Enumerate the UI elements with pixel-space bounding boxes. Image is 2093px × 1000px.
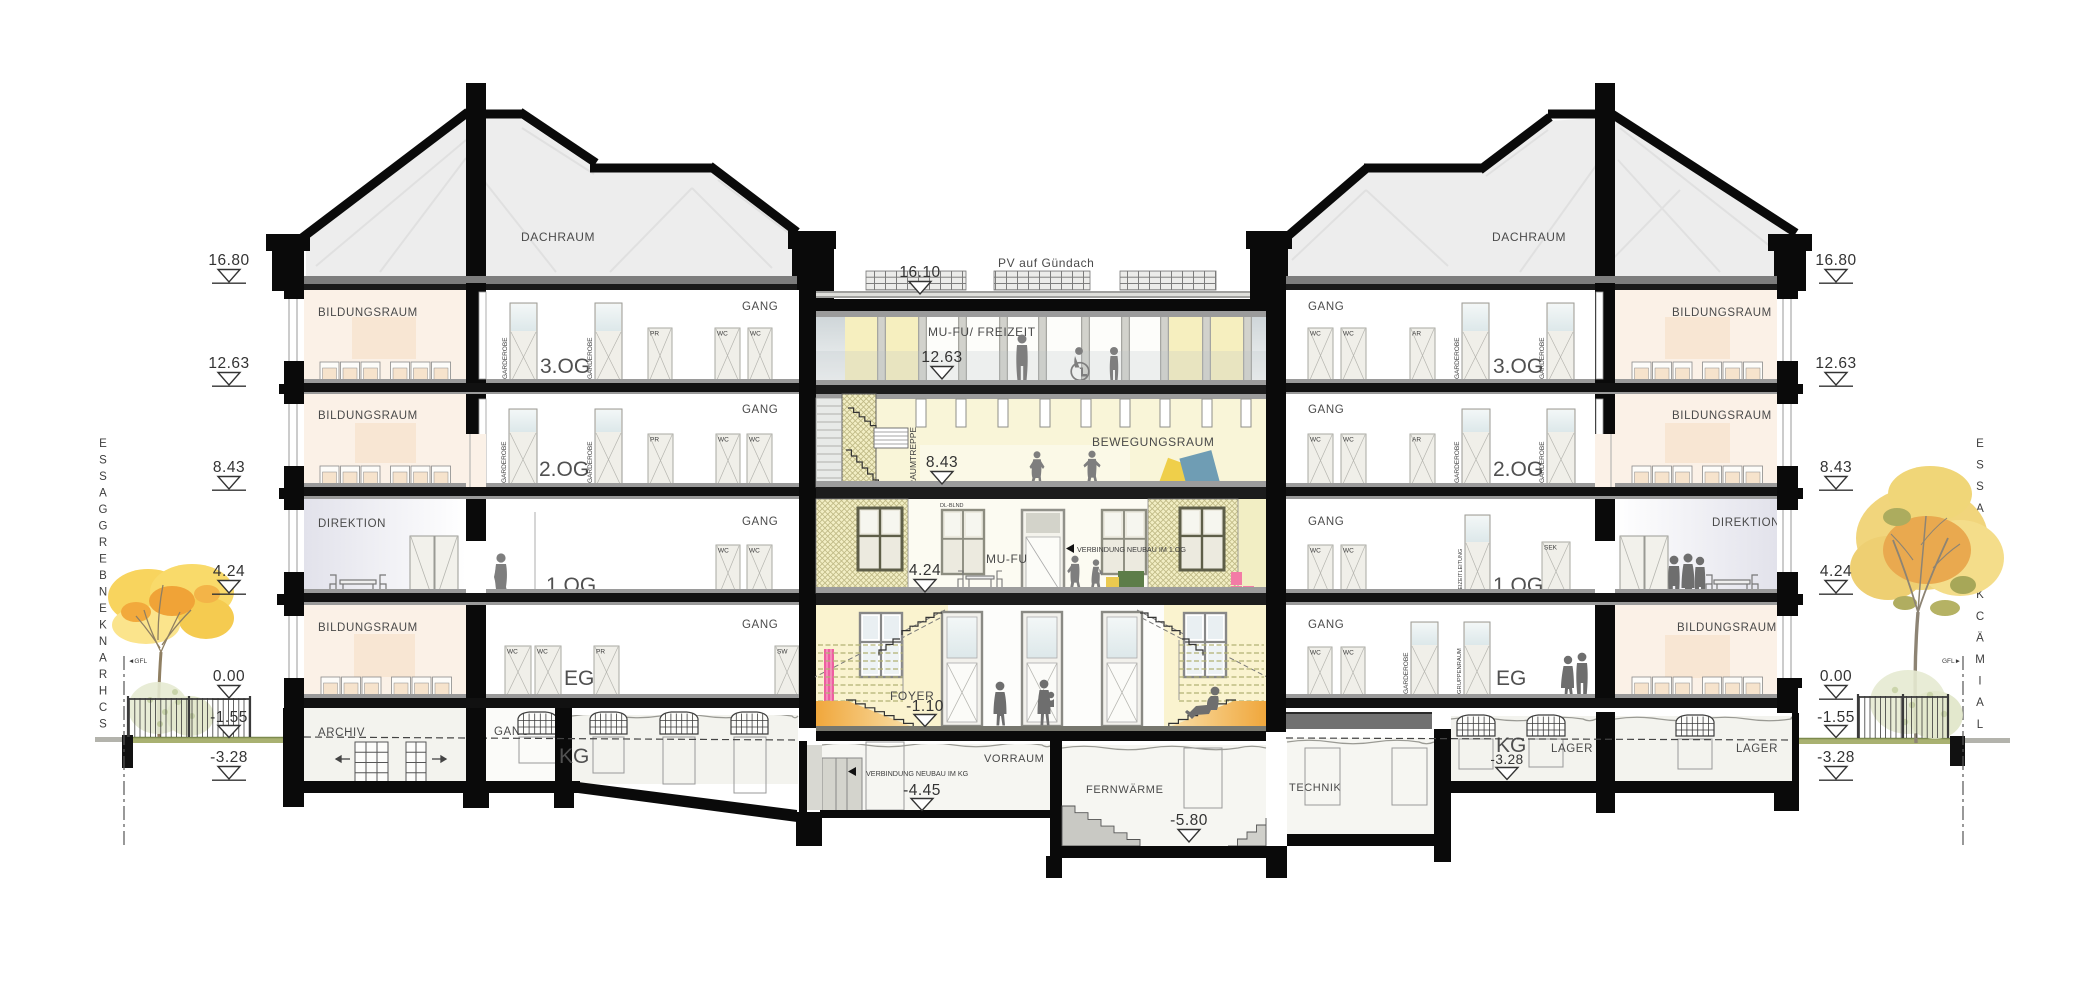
svg-text:WC: WC	[507, 649, 518, 656]
svg-text:GANG: GANG	[742, 619, 778, 631]
svg-text:WC: WC	[749, 437, 760, 444]
svg-text:3.OG: 3.OG	[1493, 355, 1543, 378]
svg-text:AR: AR	[1412, 331, 1421, 338]
svg-text:SEK: SEK	[1544, 545, 1558, 552]
svg-text:EG: EG	[564, 667, 594, 690]
svg-text:E: E	[99, 438, 107, 450]
svg-text:4.24: 4.24	[1820, 563, 1852, 580]
svg-text:VORRAUM: VORRAUM	[984, 753, 1044, 765]
svg-text:WC: WC	[750, 331, 761, 338]
svg-text:SW: SW	[777, 649, 788, 656]
svg-text:WC: WC	[1310, 437, 1321, 444]
svg-text:S: S	[1976, 460, 1984, 472]
svg-text:GRUPPENRAUM: GRUPPENRAUM	[1457, 648, 1463, 694]
svg-text:WC: WC	[1343, 437, 1354, 444]
svg-text:N: N	[99, 587, 107, 599]
svg-text:MU-FU: MU-FU	[986, 552, 1028, 566]
svg-text:A: A	[1976, 697, 1984, 709]
svg-text:S: S	[99, 471, 107, 483]
svg-text:3.OG: 3.OG	[540, 355, 590, 378]
svg-text:H: H	[99, 686, 107, 698]
svg-text:-3.28: -3.28	[210, 749, 248, 766]
svg-text:16.80: 16.80	[208, 252, 249, 269]
svg-text:C: C	[99, 702, 107, 714]
svg-text:GARDEROBE: GARDEROBE	[1454, 441, 1461, 483]
svg-text:WC: WC	[1310, 548, 1321, 555]
svg-text:M: M	[1975, 654, 1985, 666]
svg-text:C: C	[1976, 611, 1984, 623]
svg-text:E: E	[99, 603, 107, 615]
svg-text:BILDUNGSRAUM: BILDUNGSRAUM	[1672, 307, 1772, 319]
svg-text:WC: WC	[1343, 331, 1354, 338]
svg-text:DACHRAUM: DACHRAUM	[1492, 230, 1566, 244]
svg-text:GFL►: GFL►	[1942, 658, 1961, 665]
svg-text:GARDEROBE: GARDEROBE	[1454, 337, 1461, 379]
svg-text:PV auf Gündach: PV auf Gündach	[998, 256, 1094, 270]
svg-text:S: S	[99, 719, 107, 731]
svg-text:WC: WC	[537, 649, 548, 656]
svg-text:DACHRAUM: DACHRAUM	[521, 230, 595, 244]
svg-text:-4.45: -4.45	[903, 782, 941, 799]
svg-text:GARDEROBE: GARDEROBE	[502, 337, 509, 379]
svg-text:BILDUNGSRAUM: BILDUNGSRAUM	[318, 410, 418, 422]
svg-text:AR: AR	[1412, 437, 1421, 444]
svg-text:KG: KG	[559, 745, 589, 768]
svg-text:4.24: 4.24	[213, 563, 245, 580]
svg-text:A: A	[99, 653, 107, 665]
svg-text:-1.10: -1.10	[906, 698, 944, 715]
svg-text:4.24: 4.24	[909, 562, 941, 579]
svg-text:TECHNIK: TECHNIK	[1289, 782, 1342, 794]
svg-text:WC: WC	[1310, 331, 1321, 338]
svg-text:BILDUNGSRAUM: BILDUNGSRAUM	[1672, 410, 1772, 422]
svg-text:WC: WC	[1343, 548, 1354, 555]
svg-text:DIREKTION: DIREKTION	[1712, 517, 1780, 529]
svg-text:B: B	[99, 570, 107, 582]
svg-text:GARDEROBE: GARDEROBE	[501, 441, 508, 483]
svg-text:8.43: 8.43	[926, 454, 958, 471]
svg-text:LAGER: LAGER	[1736, 743, 1778, 755]
svg-text:WC: WC	[718, 437, 729, 444]
svg-text:S: S	[1976, 481, 1984, 493]
svg-text:PR: PR	[650, 331, 659, 338]
svg-text:EG: EG	[1496, 667, 1526, 690]
svg-text:GANG: GANG	[742, 404, 778, 416]
svg-text:E: E	[1976, 438, 1984, 450]
svg-text:8.43: 8.43	[213, 459, 245, 476]
svg-text:DIREKTION: DIREKTION	[318, 518, 386, 530]
svg-text:VERBINDUNG NEUBAU IM KG: VERBINDUNG NEUBAU IM KG	[866, 769, 969, 778]
svg-text:GANG: GANG	[1308, 619, 1344, 631]
svg-text:A: A	[99, 488, 107, 500]
svg-text:K: K	[99, 620, 107, 632]
svg-text:-1.55: -1.55	[210, 709, 248, 726]
svg-text:GARDEROBE: GARDEROBE	[1403, 652, 1410, 694]
svg-text:WC: WC	[717, 331, 728, 338]
svg-text:12.63: 12.63	[921, 349, 962, 366]
svg-text:GANG: GANG	[1308, 516, 1344, 528]
svg-text:R: R	[99, 669, 107, 681]
svg-text:R: R	[99, 537, 107, 549]
svg-text:2.OG: 2.OG	[1493, 458, 1543, 481]
svg-text:VERBINDUNG NEUBAU IM 1.OG: VERBINDUNG NEUBAU IM 1.OG	[1077, 545, 1186, 554]
svg-text:8.43: 8.43	[1820, 459, 1852, 476]
svg-text:G: G	[99, 521, 108, 533]
svg-text:FERNWÄRME: FERNWÄRME	[1086, 784, 1164, 796]
svg-text:16.10: 16.10	[899, 264, 940, 281]
svg-text:0.00: 0.00	[213, 668, 245, 685]
svg-text:2.OG: 2.OG	[539, 458, 589, 481]
svg-text:PR: PR	[596, 649, 605, 656]
svg-text:GANG: GANG	[742, 301, 778, 313]
svg-text:L: L	[1977, 719, 1984, 731]
svg-text:WC: WC	[718, 548, 729, 555]
svg-text:Ä: Ä	[1976, 632, 1984, 644]
svg-text:-3.28: -3.28	[1490, 752, 1523, 767]
svg-text:-5.80: -5.80	[1170, 812, 1208, 829]
svg-text:DL-BLND: DL-BLND	[940, 503, 964, 509]
svg-text:LAGER: LAGER	[1551, 743, 1593, 755]
svg-text:GANG: GANG	[1308, 301, 1344, 313]
svg-text:BILDUNGSRAUM: BILDUNGSRAUM	[318, 307, 418, 319]
svg-text:RAUMTREPPE: RAUMTREPPE	[908, 427, 918, 486]
svg-text:12.63: 12.63	[1815, 355, 1856, 372]
svg-text:BEWEGUNGSRAUM: BEWEGUNGSRAUM	[1092, 435, 1214, 449]
svg-text:GANG: GANG	[1308, 404, 1344, 416]
svg-text:-1.55: -1.55	[1817, 709, 1855, 726]
svg-text:12.63: 12.63	[208, 355, 249, 372]
svg-text:E: E	[99, 554, 107, 566]
svg-text:WC: WC	[749, 548, 760, 555]
svg-text:N: N	[99, 636, 107, 648]
svg-text:BILDUNGSRAUM: BILDUNGSRAUM	[1677, 622, 1777, 634]
svg-text:◄GFL: ◄GFL	[128, 658, 147, 665]
svg-text:0.00: 0.00	[1820, 668, 1852, 685]
svg-text:S: S	[99, 455, 107, 467]
svg-text:PR: PR	[650, 437, 659, 444]
svg-text:BILDUNGSRAUM: BILDUNGSRAUM	[318, 622, 418, 634]
svg-text:16.80: 16.80	[1815, 252, 1856, 269]
svg-text:-3.28: -3.28	[1817, 749, 1855, 766]
svg-text:WC: WC	[1310, 650, 1321, 657]
svg-text:I: I	[1978, 676, 1981, 688]
svg-text:GANG: GANG	[742, 516, 778, 528]
svg-text:WC: WC	[1343, 650, 1354, 657]
svg-text:G: G	[99, 504, 108, 516]
